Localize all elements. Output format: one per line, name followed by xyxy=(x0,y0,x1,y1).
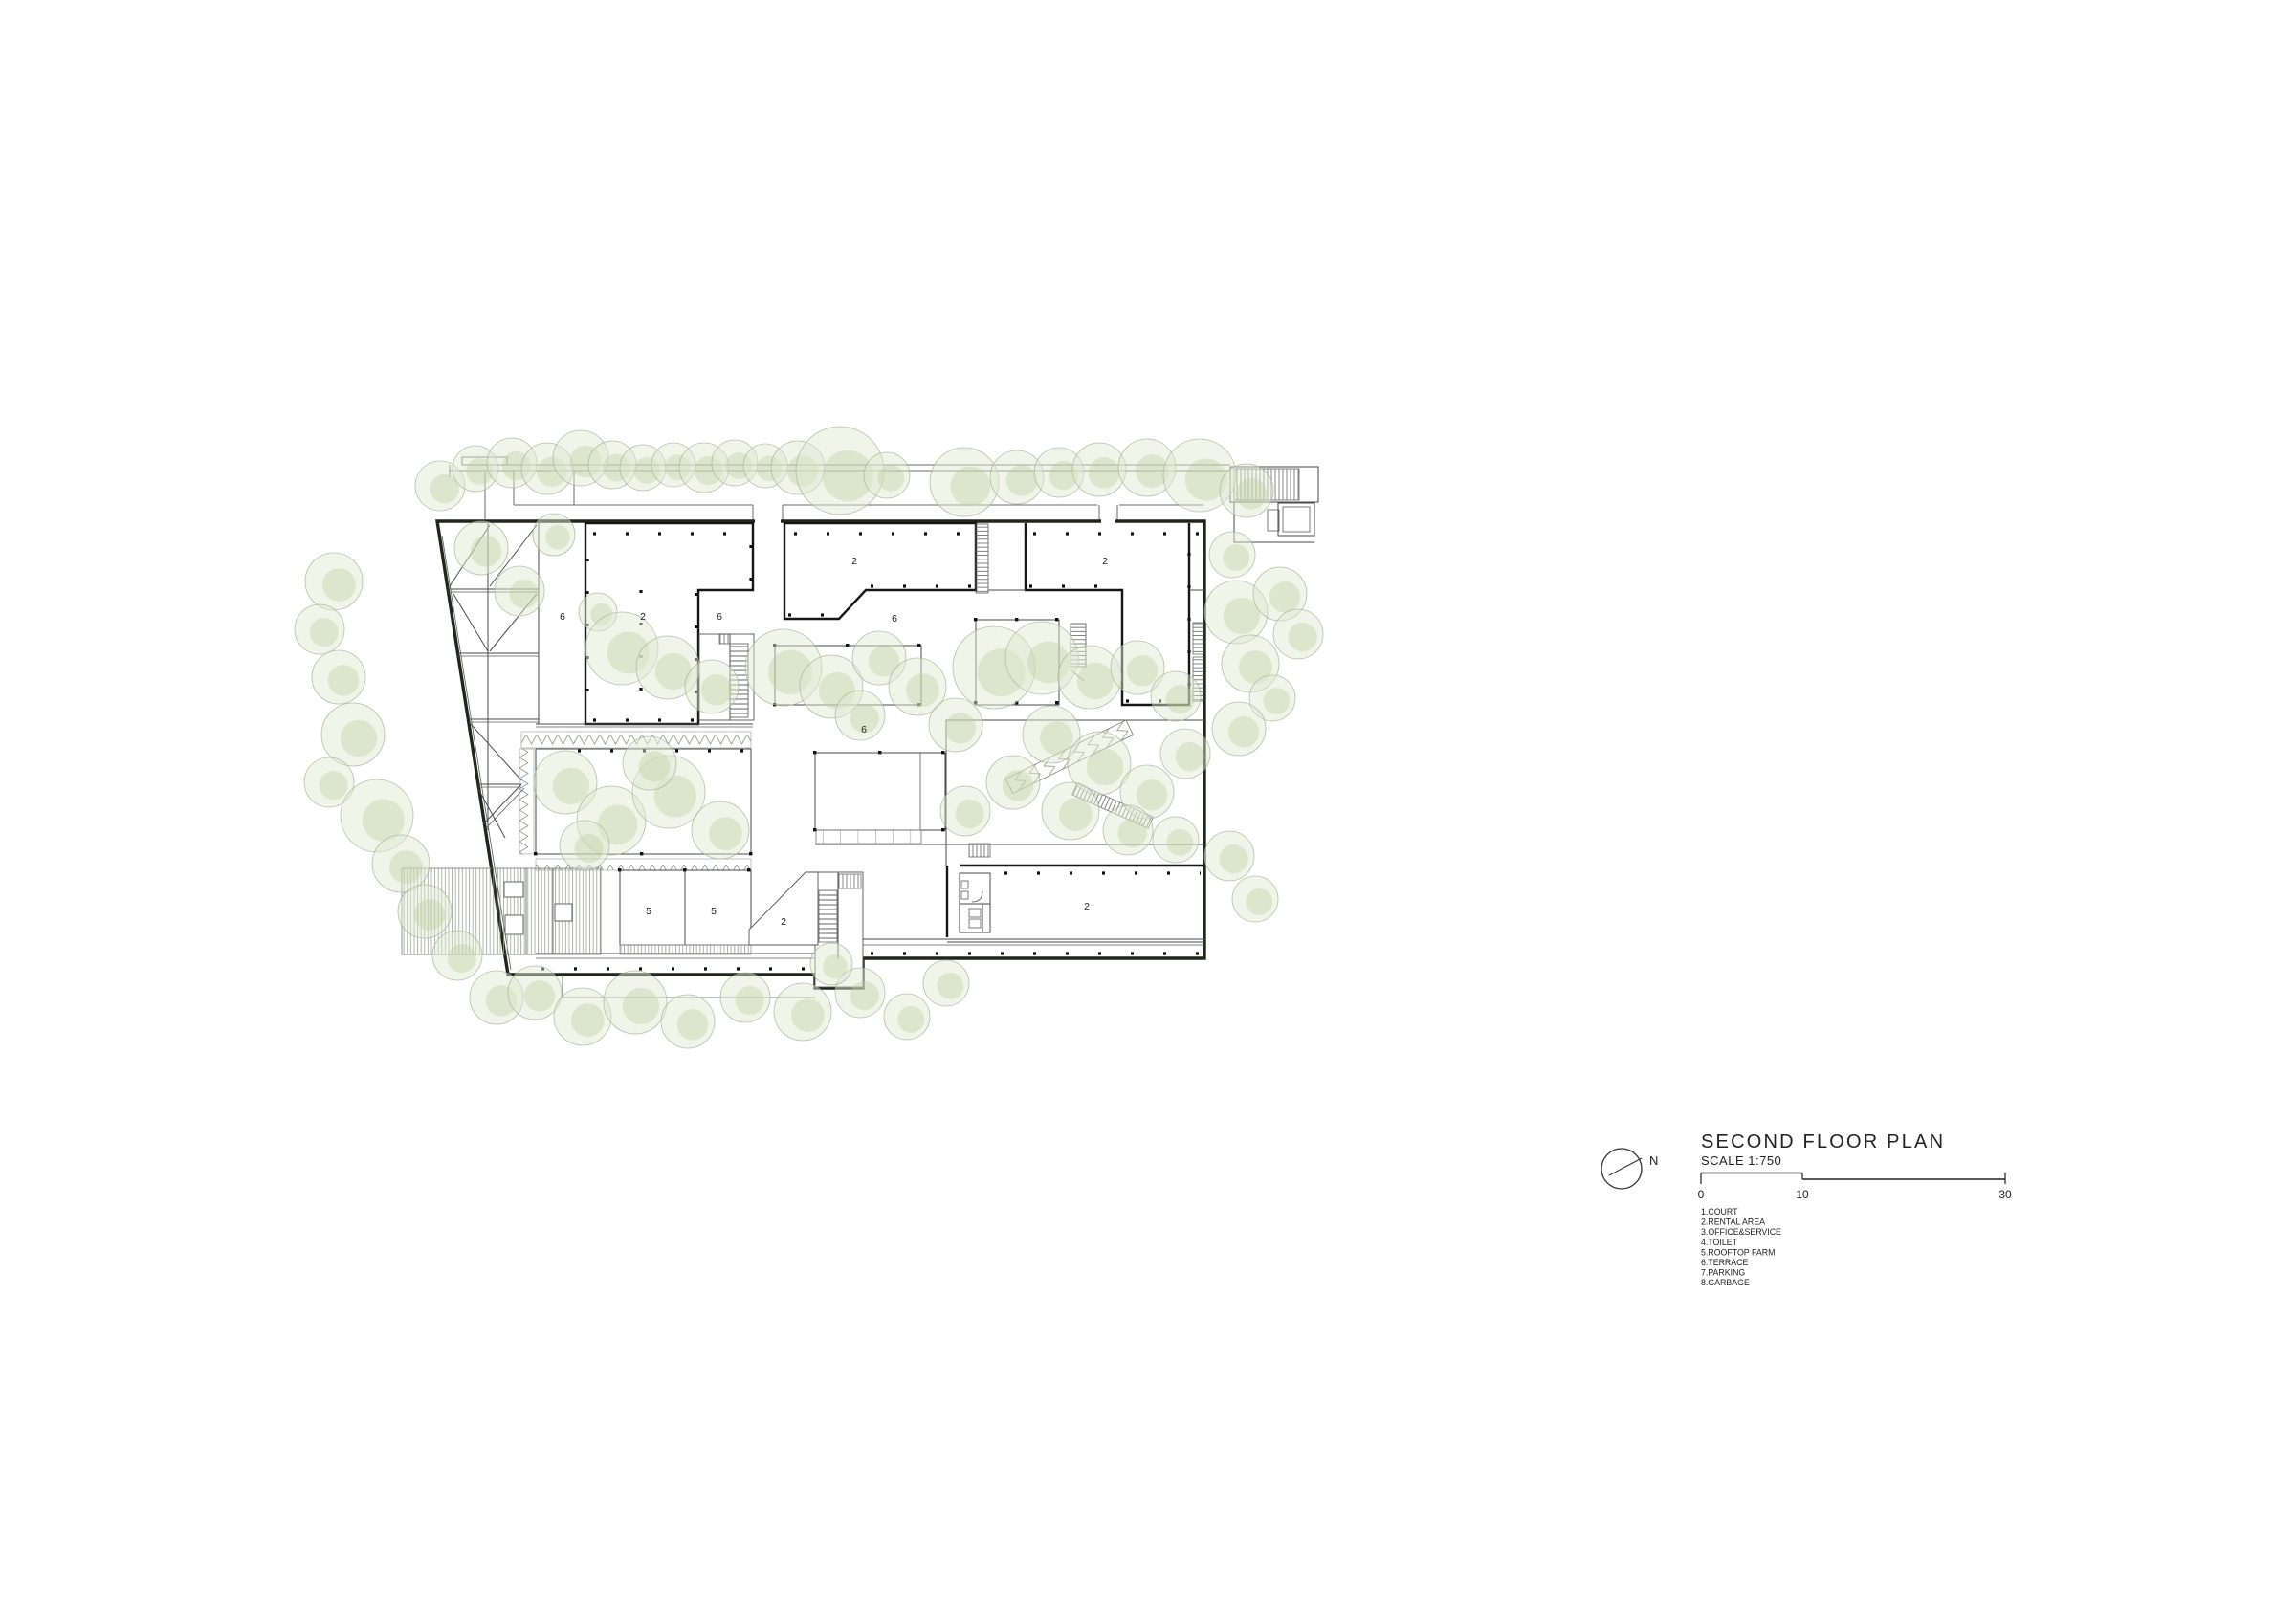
room-label-rental: 2 xyxy=(1102,556,1108,567)
tree xyxy=(312,650,365,704)
terrace-south-court xyxy=(815,753,945,830)
tree xyxy=(1232,876,1278,922)
tree xyxy=(508,966,562,1020)
tree xyxy=(560,821,609,870)
tree xyxy=(1220,464,1273,517)
tree xyxy=(454,521,508,575)
scale-bar: 0 10 30 xyxy=(1698,1173,2012,1201)
room-label-rental: 2 xyxy=(781,916,786,928)
tree xyxy=(685,660,739,713)
legend-item-garbage: 8.GARBAGE xyxy=(1701,1278,1750,1287)
room-south-chamfer xyxy=(749,872,818,945)
tree xyxy=(372,835,430,892)
tree xyxy=(774,983,831,1041)
floor-plan-page: 6 2 6 2 6 6 2 5 5 2 2 N SECOND FLOOR PLA… xyxy=(0,0,2296,1623)
legend-item-parking: 7.PARKING xyxy=(1701,1268,1745,1278)
legend-item-terrace: 6.TERRACE xyxy=(1701,1258,1749,1267)
tree xyxy=(1151,671,1201,721)
legend-item-toilet: 4.TOILET xyxy=(1701,1238,1738,1247)
legend-item-rooftop-farm: 5.ROOFTOP FARM xyxy=(1701,1247,1775,1257)
tree xyxy=(923,960,969,1006)
scale-bar-mid: 10 xyxy=(1796,1188,1809,1201)
room-label-terrace: 6 xyxy=(892,613,897,625)
tree xyxy=(1160,729,1210,779)
scale-label: SCALE 1:750 xyxy=(1701,1153,1781,1168)
legend-item-rental-area: 2.RENTAL AREA xyxy=(1701,1217,1765,1227)
stair-center xyxy=(976,524,988,593)
tree xyxy=(1204,831,1254,881)
tree xyxy=(810,943,852,985)
legend-item-office-service: 3.OFFICE&SERVICE xyxy=(1701,1227,1781,1237)
tree xyxy=(692,801,749,859)
tree xyxy=(295,604,344,654)
tree xyxy=(1072,443,1126,496)
tree xyxy=(1042,782,1099,840)
tree xyxy=(495,566,544,616)
tree xyxy=(884,994,930,1040)
tree xyxy=(1058,646,1121,709)
tree xyxy=(835,691,885,740)
tree xyxy=(1209,532,1255,578)
tree xyxy=(321,703,385,766)
garbage-room xyxy=(1278,503,1314,536)
rooftop-farm xyxy=(620,870,751,954)
scale-bar-start: 0 xyxy=(1698,1188,1705,1201)
tree xyxy=(1103,805,1153,855)
plan-title: SECOND FLOOR PLAN xyxy=(1701,1131,1945,1152)
rental-block-center xyxy=(784,523,976,619)
tree xyxy=(940,786,990,836)
north-label: N xyxy=(1649,1153,1658,1168)
legend-item-court: 1.COURT xyxy=(1701,1207,1738,1217)
tree xyxy=(398,885,452,938)
title-block: N SECOND FLOOR PLAN SCALE 1:750 0 10 30 … xyxy=(1601,1131,2012,1287)
room-label-rooftop-farm: 5 xyxy=(711,906,717,917)
tree xyxy=(533,514,575,556)
room-label-rental: 2 xyxy=(1084,901,1090,912)
scale-bar-end: 30 xyxy=(1998,1188,2012,1201)
floor-plan-drawing: 6 2 6 2 6 6 2 5 5 2 2 N SECOND FLOOR PLA… xyxy=(0,0,2296,1623)
tree xyxy=(986,756,1040,809)
stair-south-small xyxy=(969,844,990,857)
room-label-rooftop-farm: 5 xyxy=(646,906,651,917)
tree xyxy=(305,553,363,610)
tree xyxy=(432,931,482,980)
tile-strip xyxy=(816,830,921,844)
legend: 1.COURT 2.RENTAL AREA 3.OFFICE&SERVICE 4… xyxy=(1701,1207,1781,1287)
tree xyxy=(1153,817,1199,863)
tree xyxy=(720,973,770,1022)
tree xyxy=(661,995,715,1048)
tree xyxy=(864,452,910,498)
room-label-terrace: 6 xyxy=(560,611,565,623)
tree xyxy=(1273,609,1323,659)
room-label-terrace: 6 xyxy=(717,611,722,623)
tree xyxy=(929,698,982,752)
room-label-rental: 2 xyxy=(640,611,646,623)
toilet xyxy=(960,873,990,932)
room-label-terrace: 6 xyxy=(861,724,867,735)
tree xyxy=(930,448,999,516)
room-label-rental: 2 xyxy=(851,556,857,567)
tree xyxy=(623,736,676,790)
north-indicator: N xyxy=(1601,1149,1658,1189)
tree xyxy=(1212,702,1266,756)
tree xyxy=(554,988,611,1045)
tree xyxy=(604,971,667,1034)
